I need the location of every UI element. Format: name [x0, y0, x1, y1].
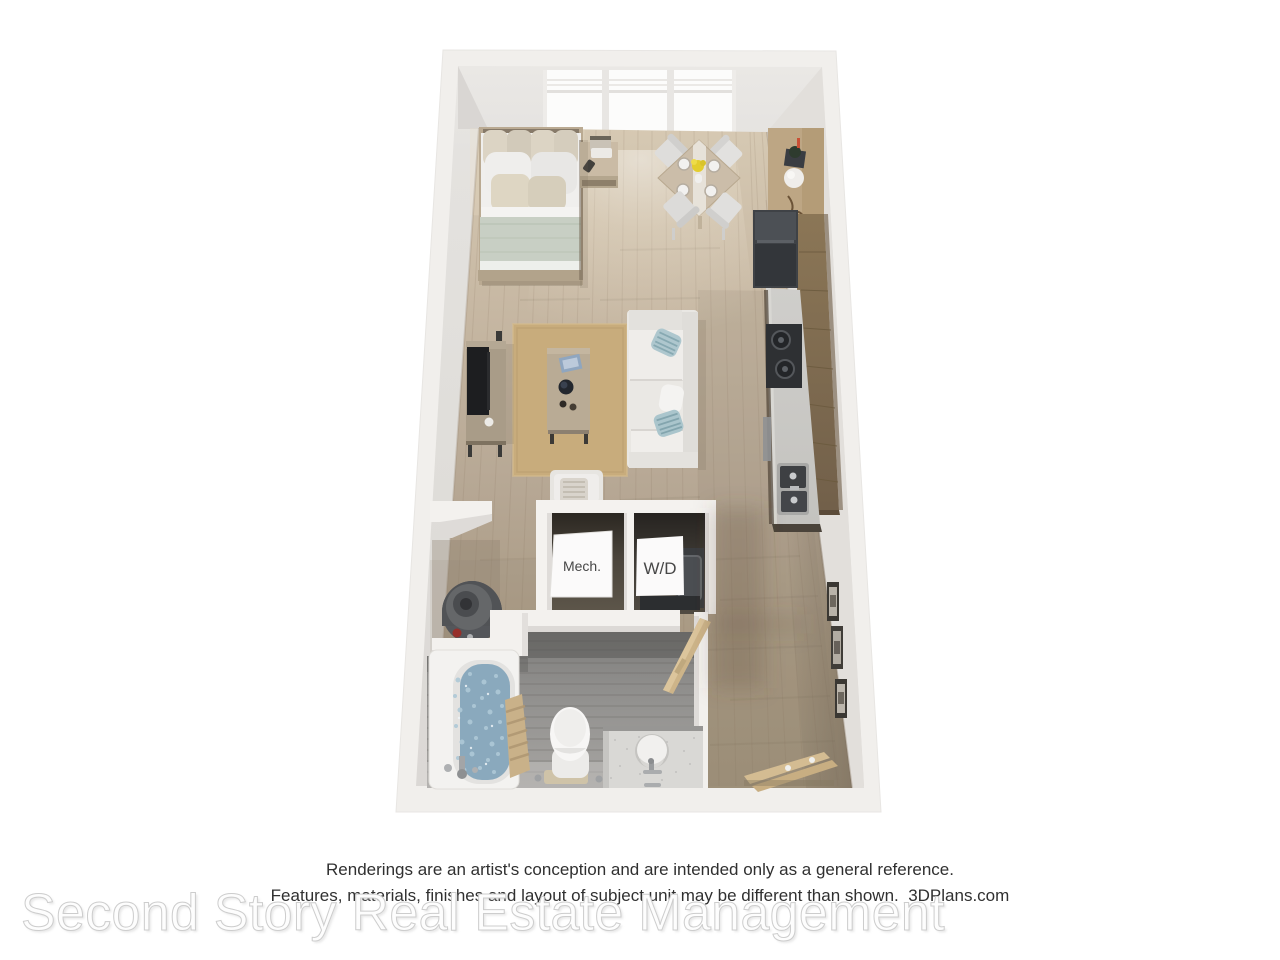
svg-text:Mech.: Mech. [563, 558, 601, 574]
svg-text:W/D: W/D [643, 559, 676, 578]
